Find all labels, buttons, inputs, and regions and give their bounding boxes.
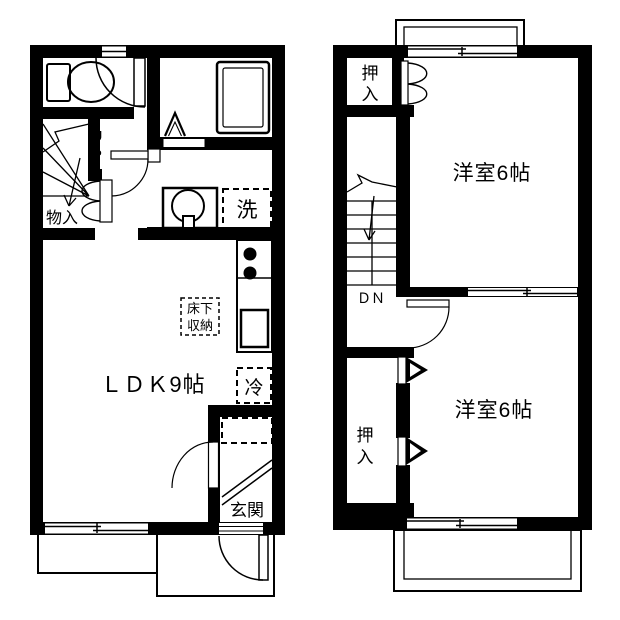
stove-burner (244, 248, 257, 261)
floor-plan-svg: 洗 U P 物入 (0, 0, 620, 620)
bedroom-top-window (408, 47, 517, 57)
closet-bottom: 押 入 (357, 357, 429, 467)
walls-1f (30, 45, 285, 535)
genkan: 玄関 (222, 418, 272, 520)
bath-folding-door (163, 113, 205, 148)
closet-top-label-line1: 押 (362, 64, 379, 83)
entrance-porch-outline (157, 534, 274, 596)
stairs-down-label: ＤＮ (357, 290, 385, 306)
underfloor-storage: 床下 収納 (181, 298, 219, 335)
under-stair-closet-doors (82, 180, 112, 222)
kitchen-sink (241, 310, 268, 347)
monoire-label: 物入 (46, 209, 78, 227)
kitchen-counter (237, 240, 272, 352)
toilet-window (102, 47, 126, 57)
stairs-up-label-line1: U (92, 128, 103, 145)
bathtub (217, 62, 269, 133)
closet-top-double-doors (401, 61, 427, 105)
first-floor-plan: 洗 U P 物入 (30, 45, 285, 596)
stove-burner (244, 267, 257, 280)
floor-plan-image: 洗 U P 物入 (0, 0, 620, 620)
ldk-label: ＬＤＫ9帖 (100, 372, 205, 397)
closet-bottom-bifold-door (398, 357, 428, 384)
genkan-step-lines (222, 460, 272, 505)
entrance-door (219, 523, 268, 580)
washbasin (163, 188, 217, 228)
washing-machine-space: 洗 (223, 189, 271, 228)
terrace-outline (38, 530, 157, 573)
washroom-door (111, 149, 160, 196)
staircase-down (347, 175, 397, 285)
balcony-bottom-outline (394, 530, 581, 591)
refrigerator-space: 冷 (237, 368, 271, 403)
closet-bottom-label-line2: 入 (357, 448, 374, 467)
ldk-genkan-door (172, 442, 219, 488)
closet-bottom-label-line1: 押 (357, 426, 374, 445)
bedroom-bottom-label: 洋室6帖 (455, 399, 534, 422)
toilet-fixture (47, 62, 114, 102)
closet-top-label-line2: 入 (362, 85, 379, 104)
stairs-up-label-line2: P (92, 147, 102, 164)
second-floor-plan: 押 入 ＤＮ 押 入 (333, 20, 592, 591)
closet-bottom-bifold-door (398, 437, 428, 466)
bedroom-top-label: 洋室6帖 (453, 162, 532, 185)
genkan-label: 玄関 (230, 501, 264, 520)
underfloor-label-line2: 収納 (187, 318, 213, 333)
underfloor-label-line1: 床下 (187, 301, 213, 316)
shoe-cabinet (222, 418, 272, 443)
bedroom-bottom-window (407, 519, 517, 529)
room-partition-sliding-door (468, 288, 577, 296)
ldk-sliding-window (45, 524, 148, 534)
washer-label: 洗 (237, 199, 258, 222)
bedroom-bottom-door (407, 300, 449, 348)
fridge-label: 冷 (244, 377, 263, 399)
balcony-top-outline (396, 20, 524, 47)
